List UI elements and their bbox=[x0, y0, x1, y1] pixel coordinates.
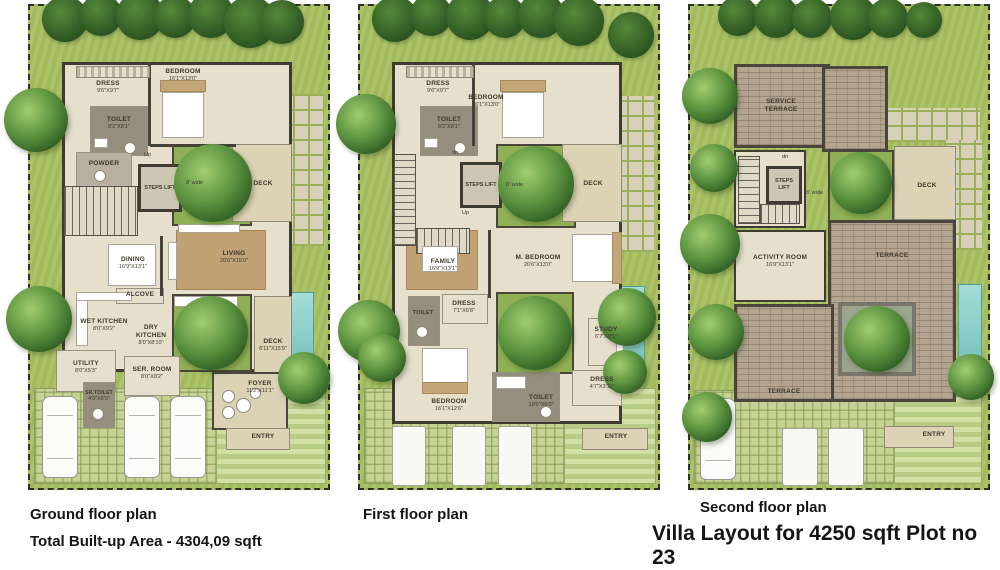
staircase bbox=[394, 154, 416, 246]
tree bbox=[688, 304, 744, 360]
room-dims: 8'0"x9'2" bbox=[80, 326, 128, 333]
room-dims: 16'9"x13'1" bbox=[416, 266, 470, 273]
room-dims: 20'6"x15'0" bbox=[204, 258, 264, 265]
room-dims: 11'2"x11'1" bbox=[234, 388, 286, 395]
car bbox=[170, 396, 206, 478]
room-label-terrace: TERRACE bbox=[866, 252, 918, 260]
room-name: TOILET bbox=[107, 116, 131, 123]
room-name: SER. ROOM bbox=[133, 366, 172, 373]
room-label-deck: DECK bbox=[576, 180, 610, 188]
room-label-entry: ENTRY bbox=[596, 433, 636, 441]
bed-headboard bbox=[500, 80, 546, 92]
room-dims: 8'0"x8'10" bbox=[128, 340, 174, 347]
bed bbox=[162, 92, 204, 138]
room-name: SERVICE TERRACE bbox=[765, 98, 798, 113]
bed-headboard bbox=[612, 232, 622, 284]
pergola-panel bbox=[828, 428, 864, 486]
room-label-deck: DECK bbox=[246, 180, 280, 188]
room-label-dress: DRESS9'6"x9'7" bbox=[80, 80, 136, 94]
room-label-study: STUDY6'7"x9'5" bbox=[582, 326, 630, 340]
bathtub bbox=[496, 376, 526, 389]
bed bbox=[572, 234, 616, 282]
room-name: POWDER bbox=[89, 160, 119, 167]
room-label-dress: DRESS9'6"x9'7" bbox=[410, 80, 466, 94]
wc-fixture bbox=[94, 170, 106, 182]
annotation-width: 8' wide bbox=[506, 182, 523, 188]
room-label-toilet3: TOILET10'0"x6'0" bbox=[514, 394, 568, 408]
room-label-bedroom: BEDROOM16'1"x13'0" bbox=[152, 68, 214, 82]
courtyard-tree bbox=[830, 152, 892, 214]
room-dims: 4'0"x6'0" bbox=[74, 396, 124, 403]
room-name: ALCOVE bbox=[126, 291, 154, 298]
room-name: TERRACE bbox=[876, 252, 909, 259]
room-label-toilet: TOILET8'2"x8'1" bbox=[94, 116, 144, 130]
room-name: FAMILY bbox=[431, 258, 455, 265]
lift: STEPS LIFT bbox=[460, 162, 502, 208]
room-label-living: LIVING20'6"x15'0" bbox=[204, 250, 264, 264]
room-dims: 16'1"x13'0" bbox=[454, 102, 518, 109]
annotation-width: 8' wide bbox=[806, 190, 823, 196]
room-name: BEDROOM bbox=[431, 398, 466, 405]
room-name: TOILET bbox=[437, 116, 461, 123]
room-name: DRESS bbox=[426, 80, 449, 87]
room-label-alcove: ALCOVE bbox=[116, 291, 164, 299]
room-label-service-terrace: SERVICE TERRACE bbox=[750, 98, 812, 114]
room-dims: 16'9"x13'1" bbox=[104, 264, 162, 271]
bed-footboard bbox=[422, 382, 468, 394]
room-name: BEDROOM bbox=[468, 94, 503, 101]
room-name: M. BEDROOM bbox=[516, 254, 561, 261]
washbasin bbox=[424, 138, 438, 148]
wc-fixture bbox=[416, 326, 428, 338]
room-label-toilet: TOILET8'2"x8'1" bbox=[424, 116, 474, 130]
room-dims: 4'7"x3'11" bbox=[580, 384, 624, 391]
tree bbox=[358, 334, 406, 382]
bed bbox=[422, 348, 468, 384]
courtyard-tree bbox=[174, 296, 248, 370]
sofa bbox=[168, 242, 177, 280]
lift: STEPS LIFT bbox=[766, 166, 802, 204]
room-dims: 16'1"x13'0" bbox=[152, 76, 214, 83]
room-name: DRESS bbox=[590, 376, 613, 383]
hedge-bush bbox=[608, 12, 654, 58]
pergola-panel bbox=[392, 426, 426, 486]
room-label-terrace2: TERRACE bbox=[758, 388, 810, 396]
staircase bbox=[738, 156, 760, 224]
room-dims: 16'9"x13'1" bbox=[744, 262, 816, 269]
room-dims: 6'7"x9'5" bbox=[582, 334, 630, 341]
caption-ground-floor-plan: Ground floor plan bbox=[30, 506, 157, 523]
tree bbox=[948, 354, 994, 400]
room-label-dining: DINING16'9"x13'1" bbox=[104, 256, 162, 270]
washbasin bbox=[94, 138, 108, 148]
first-floor-plan-panel: STEPS LIFT DRESS9'6"x9'7" BEDROOM16'1"x1… bbox=[358, 4, 660, 490]
pergola-panel bbox=[782, 428, 818, 486]
tree bbox=[682, 68, 738, 124]
car bbox=[124, 396, 160, 478]
room-dims: 8'2"x8'1" bbox=[94, 124, 144, 131]
annotation-dn: dn bbox=[782, 154, 788, 160]
room-label-dress3: DRESS4'7"x3'11" bbox=[580, 376, 624, 390]
tree bbox=[682, 392, 732, 442]
staircase bbox=[760, 204, 800, 224]
toilet-room bbox=[408, 296, 440, 346]
annotation-up: Up bbox=[462, 210, 469, 216]
powder-room bbox=[76, 152, 132, 188]
foyer-table bbox=[236, 398, 251, 413]
room-name: DECK bbox=[263, 338, 282, 345]
tree bbox=[680, 214, 740, 274]
servant-toilet bbox=[83, 382, 115, 428]
hedge-bush bbox=[260, 0, 304, 44]
room-label-dress2: DRESS7'1"x6'8" bbox=[440, 300, 488, 314]
wardrobe bbox=[76, 66, 150, 78]
room-name: UTILITY bbox=[73, 360, 99, 367]
annotation-dn: dn bbox=[452, 150, 458, 156]
room-dims: 8'2"x8'1" bbox=[424, 124, 474, 131]
room-label-deck: DECK bbox=[912, 182, 942, 190]
room-label-servant-room: SER. ROOM8'0"x8'2" bbox=[126, 366, 178, 380]
foyer-chair bbox=[222, 406, 235, 419]
wardrobe bbox=[406, 66, 474, 78]
room-name: DINING bbox=[121, 256, 145, 263]
service-terrace-wing bbox=[822, 66, 888, 152]
wc-fixture bbox=[92, 408, 104, 420]
annotation-width: 8' wide bbox=[186, 180, 203, 186]
room-label-activity-room: ACTIVITY ROOM16'9"x13'1" bbox=[744, 254, 816, 268]
room-name: STUDY bbox=[594, 326, 617, 333]
pergola-panel bbox=[498, 426, 532, 486]
toilet-room bbox=[90, 106, 148, 156]
room-name: DECK bbox=[253, 180, 272, 187]
room-dims: 6'11"x15'9" bbox=[252, 346, 294, 353]
room-name: DRESS bbox=[96, 80, 119, 87]
room-name: DECK bbox=[583, 180, 602, 187]
room-label-wet-kitchen: WET KITCHEN8'0"x9'2" bbox=[80, 318, 128, 332]
room-name: BEDROOM bbox=[165, 68, 200, 75]
room-name: ENTRY bbox=[252, 433, 275, 440]
ground-floor-plan-panel: STEPS LIFT DRESS9'6"x9'7" BEDROOM16'1"x1… bbox=[28, 4, 330, 490]
caption-first-floor-plan: First floor plan bbox=[363, 506, 468, 523]
room-name: LIVING bbox=[223, 250, 246, 257]
room-label-dry-kitchen: DRY KITCHEN8'0"x8'10" bbox=[128, 324, 174, 346]
room-name: DRESS bbox=[452, 300, 475, 307]
courtyard-tree bbox=[498, 296, 572, 370]
pergola-panel bbox=[452, 426, 486, 486]
room-name: ENTRY bbox=[923, 431, 946, 438]
stepping-stone-path bbox=[886, 108, 980, 142]
caption-second-floor-plan: Second floor plan bbox=[700, 499, 827, 516]
room-name: ACTIVITY ROOM bbox=[753, 254, 807, 261]
room-label-deck2: DECK6'11"x15'9" bbox=[252, 338, 294, 352]
room-name: FOYER bbox=[248, 380, 271, 387]
terrace-tree bbox=[844, 306, 910, 372]
staircase bbox=[64, 186, 138, 236]
room-label-foyer: FOYER11'2"x11'1" bbox=[234, 380, 286, 394]
tree bbox=[690, 144, 738, 192]
room-dims: 8'0"x5'3" bbox=[60, 368, 112, 375]
tree bbox=[336, 94, 396, 154]
room-label-bedroom: BEDROOM16'1"x13'0" bbox=[454, 94, 518, 108]
room-dims: 20'6"x13'0" bbox=[504, 262, 572, 269]
room-label-family: FAMILY16'9"x13'1" bbox=[416, 258, 470, 272]
sofa bbox=[178, 224, 240, 233]
room-name: ENTRY bbox=[605, 433, 628, 440]
room-label-entry: ENTRY bbox=[243, 433, 283, 441]
room-name: TERRACE bbox=[768, 388, 801, 395]
tree bbox=[4, 88, 68, 152]
room-name: TOILET bbox=[529, 394, 553, 401]
tree bbox=[6, 286, 72, 352]
room-label-bedroom2: BEDROOM16'1"x12'6" bbox=[418, 398, 480, 412]
total-built-up-area: Total Built-up Area - 4304,09 sqft bbox=[30, 533, 262, 550]
tree bbox=[278, 352, 330, 404]
room-dims: 10'0"x6'0" bbox=[514, 402, 568, 409]
room-label-sr-toilet: SR.TOILET4'0"x6'0" bbox=[74, 390, 124, 403]
hedge-bush bbox=[906, 2, 942, 38]
room-name: DECK bbox=[917, 182, 936, 189]
room-dims: 8'0"x8'2" bbox=[126, 374, 178, 381]
room-dims: 9'6"x9'7" bbox=[80, 88, 136, 95]
wc-fixture bbox=[124, 142, 136, 154]
room-name: TOILET bbox=[413, 310, 434, 316]
wall bbox=[488, 230, 491, 298]
room-name: DRY KITCHEN bbox=[136, 324, 166, 339]
annotation-up: Up bbox=[144, 152, 151, 158]
second-floor-plan-panel: STEPS LIFT SERVICE TERRACE DECK ACTIVITY… bbox=[688, 4, 990, 490]
room-label-master-bedroom: M. BEDROOM20'6"x13'0" bbox=[504, 254, 572, 268]
room-label-utility: UTILITY8'0"x5'3" bbox=[60, 360, 112, 374]
room-name: WET KITCHEN bbox=[80, 318, 127, 325]
room-dims: 16'1"x12'6" bbox=[418, 406, 480, 413]
car bbox=[42, 396, 78, 478]
room-label-toilet2: TOILET bbox=[400, 310, 446, 317]
toilet-room bbox=[420, 106, 478, 156]
room-label-powder: POWDER bbox=[78, 160, 130, 168]
room-label-entry: ENTRY bbox=[914, 431, 954, 439]
page-title: Villa Layout for 4250 sqft Plot no 23 bbox=[652, 522, 1000, 570]
room-dims: 7'1"x6'8" bbox=[440, 308, 488, 315]
